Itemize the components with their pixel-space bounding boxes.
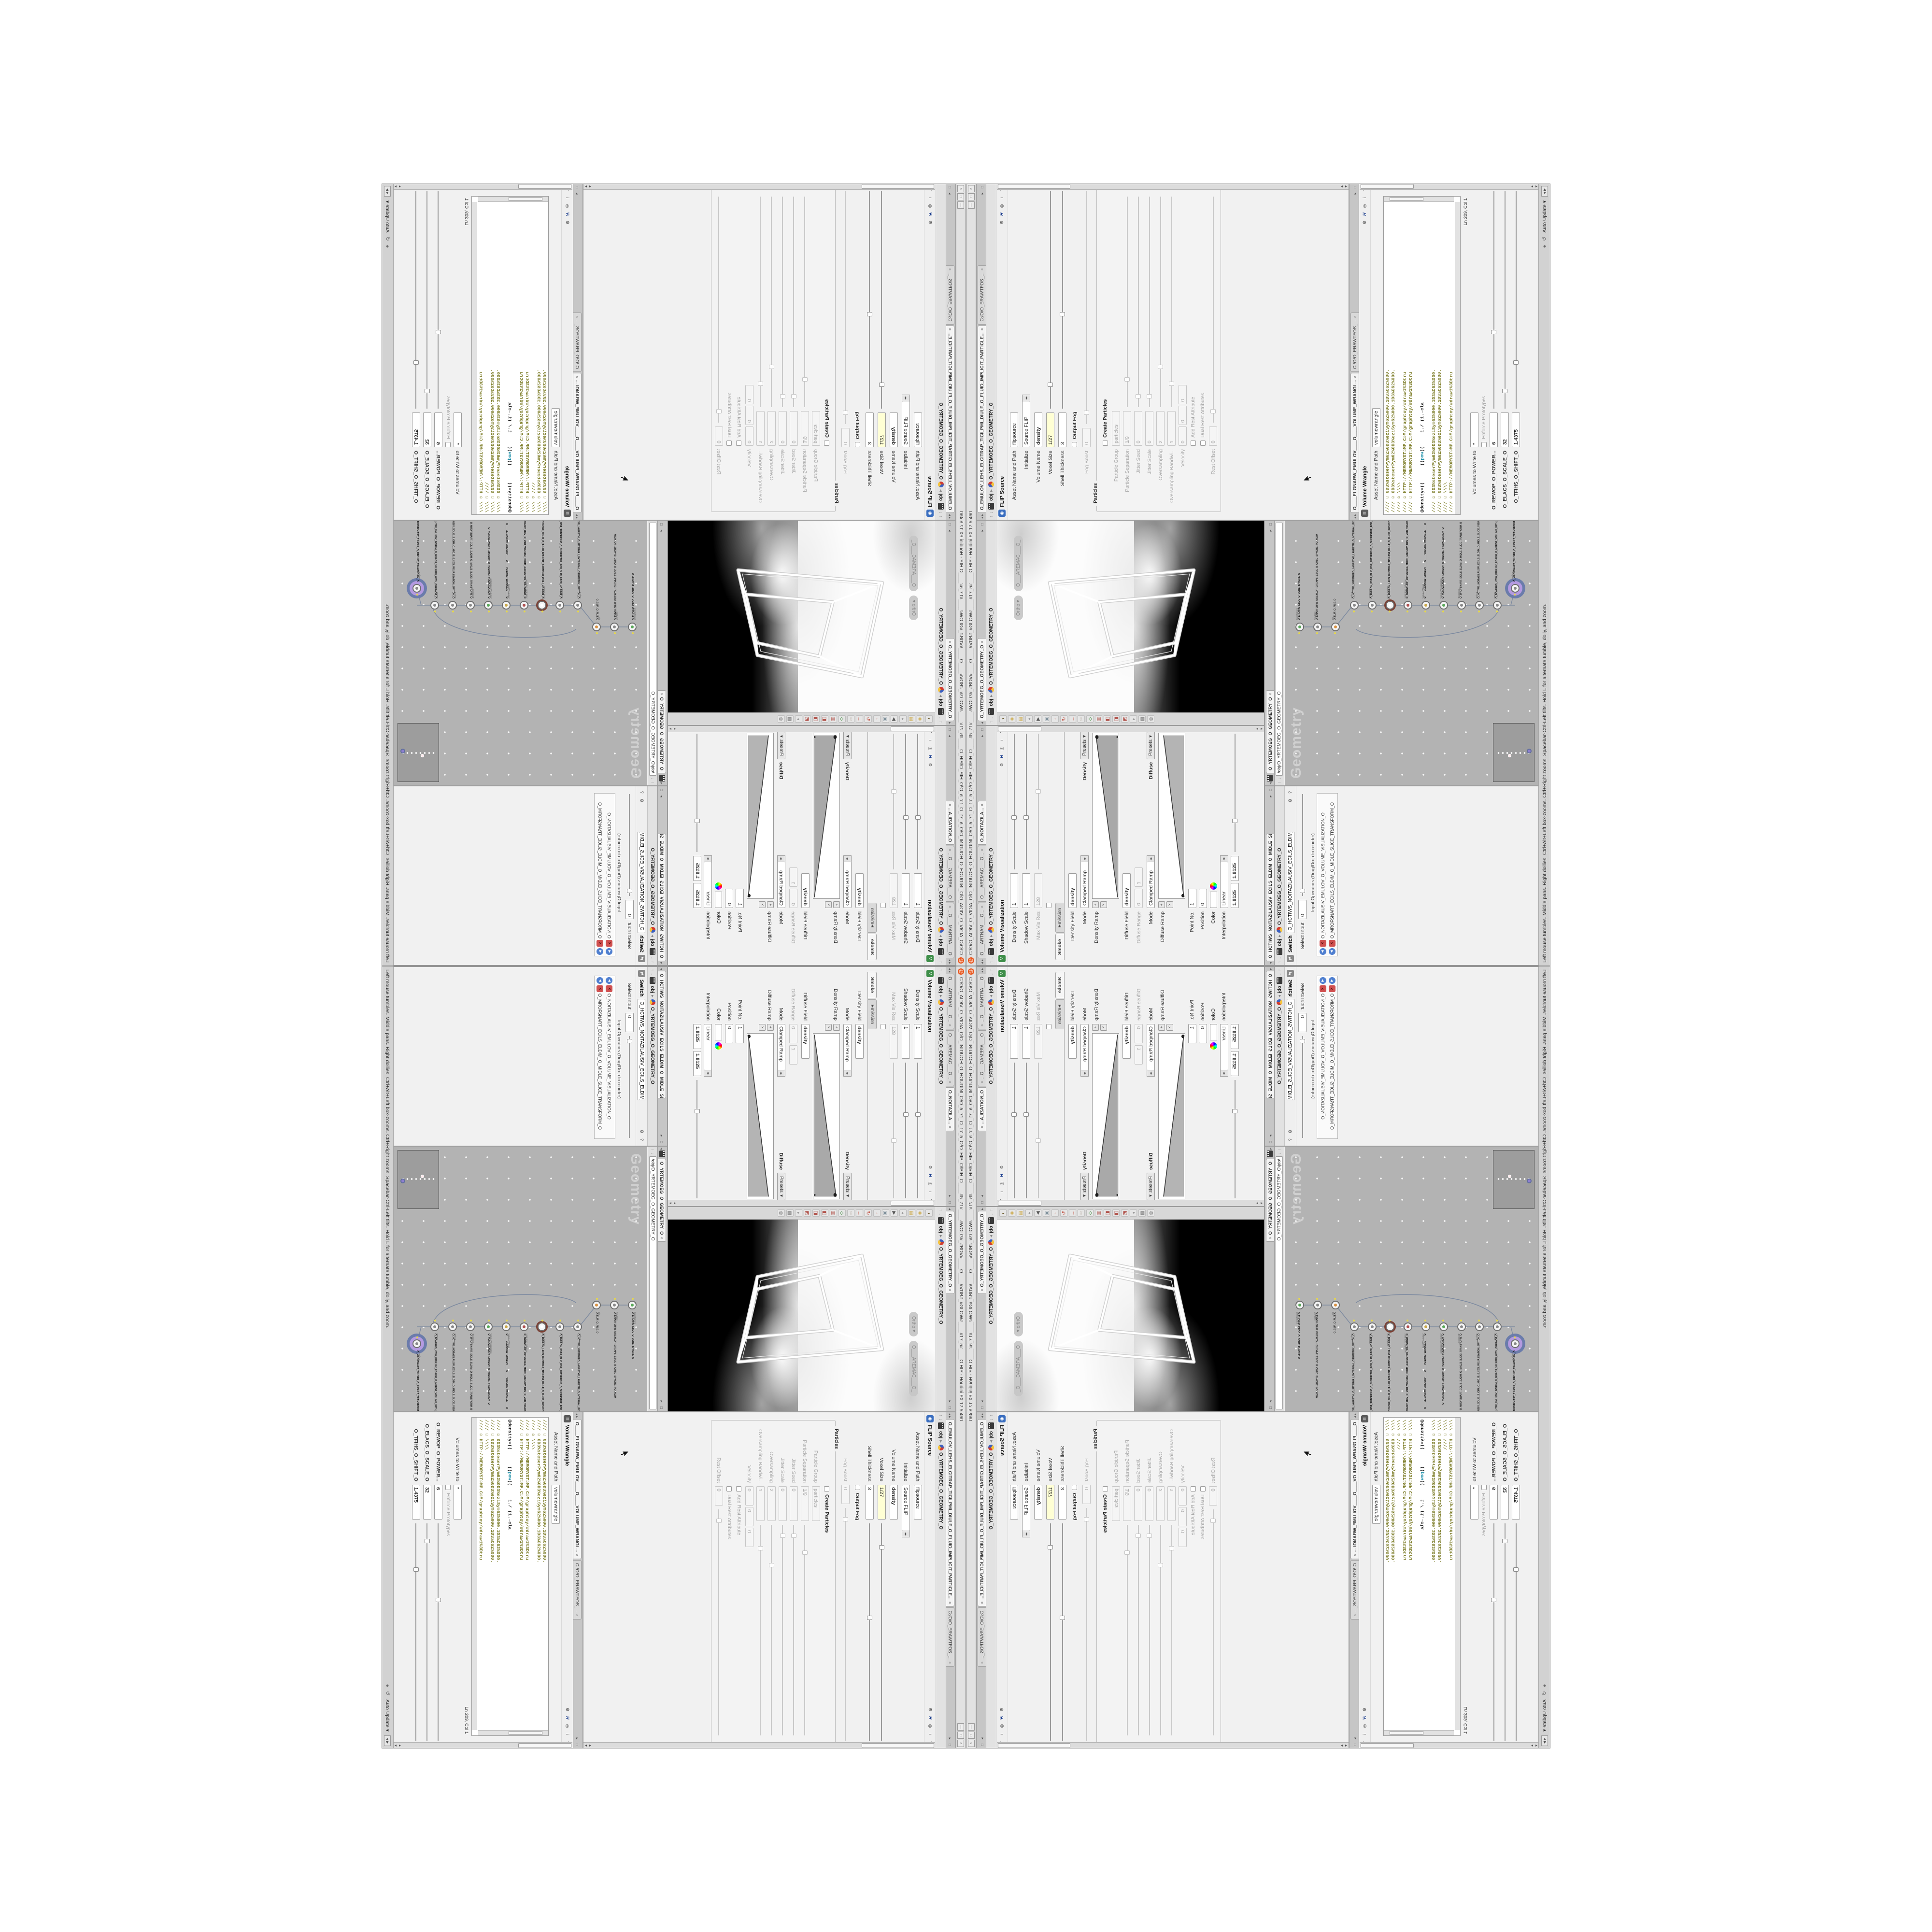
nav-up-icon[interactable]: ↑ [989, 1414, 994, 1417]
viewport-tool-icon[interactable]: ▨ [1138, 715, 1146, 723]
network-node[interactable]: Superstep O_EMULOV_EDAF_PILC_ROF_PETSREP… [555, 1322, 564, 1331]
folder-checkbox[interactable] [881, 1024, 886, 1029]
slider-thumb[interactable] [780, 1534, 785, 1538]
scroll-down-icon[interactable]: ▼ [668, 1200, 672, 1206]
viewport-tool-icon[interactable]: ▶ [891, 1209, 898, 1217]
pane-split-icon[interactable]: ▸ [948, 528, 952, 533]
tab-emission[interactable]: Emission [868, 903, 877, 933]
pane-split-icon[interactable]: ▸ [948, 733, 952, 739]
param-value-field[interactable]: 1 [736, 889, 744, 908]
input-operator-row[interactable]: ◀ × O_MROFSNART_ECILS_ELDIM_O_MIDLE_SLIC… [1327, 977, 1336, 1137]
ortho-pill-button[interactable]: Ortho ▾ [1014, 1312, 1023, 1336]
nav-up-icon[interactable]: ↑ [938, 516, 943, 518]
pane-maximize-icon[interactable]: □ [1268, 787, 1273, 793]
diffuse-field-value[interactable]: density [801, 873, 810, 908]
network-node[interactable]: FLIP Source O_EMULOV_LEHS_ELCITRAP_TICIL… [538, 601, 546, 610]
minimize-button[interactable]: — [958, 1723, 965, 1731]
param-slider[interactable] [715, 1509, 723, 1737]
pane-corner-gadget[interactable]: ◀▶ [384, 186, 391, 197]
vex-code-box[interactable]: //// ☺ 0D3%steserPym62%0D3%eziSym62%000.… [471, 1417, 549, 1736]
pane-split-icon[interactable]: ▸ [1268, 1399, 1273, 1404]
tab-scroll-right-icon[interactable]: ▸ [980, 1416, 984, 1418]
ramp-marker-icon[interactable]: ▶ [747, 1036, 751, 1038]
gear-icon[interactable]: ⚙ [927, 762, 933, 768]
zoom-icon[interactable]: ◎ [999, 1180, 1005, 1187]
viewport-tool-icon[interactable]: ◈ [917, 1209, 924, 1217]
density-field-value[interactable]: density [855, 873, 864, 908]
network-node[interactable]: Volume Visualization O_NOITAZILAUSIV_EMU… [484, 601, 493, 610]
asset-name-field[interactable]: volumewrangle [552, 408, 560, 447]
network-node[interactable]: Switch O_HCTIWS_YRTEMOEG_LANRETXE_LANRET… [573, 601, 582, 610]
pane-split-icon[interactable]: ▸ [575, 191, 579, 196]
param-slider[interactable] [842, 189, 849, 424]
viewport-tool-icon[interactable]: ↔ [1069, 715, 1076, 723]
color-swatch[interactable] [715, 1024, 723, 1040]
tab-scroll-right-icon[interactable]: ▸ [980, 514, 984, 516]
auto-update-dropdown[interactable]: Auto Update▾ [1542, 1699, 1548, 1732]
slider-thumb[interactable] [791, 394, 796, 398]
param-slider[interactable] [1023, 1063, 1030, 1200]
tab-scroll-right-icon[interactable]: ▸ [1353, 514, 1357, 516]
diffuse-field-value[interactable]: density [1122, 1024, 1131, 1059]
houdini-logo-icon[interactable]: H [999, 1172, 1005, 1179]
add-rest-checkbox[interactable] [737, 1486, 742, 1492]
output-fog-checkbox[interactable] [855, 1485, 860, 1490]
tab-close-icon[interactable]: × [980, 1662, 984, 1664]
param-value-field[interactable]: 1.8125 [694, 883, 702, 908]
dropdown-arrows-icon[interactable]: ◂▸ [1022, 1531, 1030, 1537]
param-slider[interactable] [779, 1525, 786, 1737]
network-path-field[interactable]: /obj/O_YRTEMOEG_O_GEOMETRY_O [1276, 523, 1283, 776]
pane-maximize-icon[interactable]: □ [980, 727, 984, 732]
pane-split-icon[interactable]: ▸ [1268, 1133, 1273, 1138]
param-value-field[interactable]: 1 [1188, 1024, 1196, 1043]
output-fog-checkbox[interactable] [855, 442, 860, 447]
houdini-logo-icon[interactable]: H [1362, 211, 1368, 217]
help-icon[interactable]: ? [1287, 1136, 1293, 1143]
slider-thumb[interactable] [769, 1563, 774, 1567]
nav-down-icon[interactable]: ↓ [989, 957, 994, 959]
param-slider[interactable] [1157, 195, 1164, 407]
slider-thumb[interactable] [891, 789, 896, 794]
param-value-field[interactable]: density [1034, 1485, 1042, 1520]
vertical-scrollbar[interactable]: ▲ ▼ [668, 726, 935, 732]
param-value-field[interactable]: 3 [866, 1485, 874, 1520]
zoom-icon[interactable]: ◎ [927, 1180, 933, 1187]
viewport-tool-icon[interactable]: ▶ [891, 715, 898, 723]
viewport-tool-icon[interactable]: ✂ [847, 715, 854, 723]
tab-emission[interactable]: Emission [868, 999, 877, 1030]
slider-thumb[interactable] [1502, 389, 1507, 393]
dropdown-arrows-icon[interactable]: ◂▸ [777, 1070, 785, 1077]
gear-icon[interactable]: ⚙ [999, 1706, 1005, 1713]
gear-icon[interactable]: ⚙ [564, 1706, 570, 1713]
param-slider[interactable] [1023, 732, 1030, 869]
ortho-pill-button[interactable]: Ortho ▾ [1014, 596, 1023, 620]
param-slider[interactable] [1135, 1525, 1142, 1737]
viewport-tool-icon[interactable]: ▤ [908, 1209, 915, 1217]
tab-close-icon[interactable]: × [980, 1289, 984, 1292]
diffuse-range-max-field[interactable]: 1 [1135, 867, 1143, 887]
volumes-to-write-field[interactable]: * [1470, 1485, 1478, 1520]
network-node[interactable]: Volume Visualization O_NOITAZILAUSIV_EMU… [1439, 1322, 1448, 1331]
nav-up-icon[interactable]: ↑ [1277, 1149, 1282, 1151]
slider-thumb[interactable] [1011, 1112, 1017, 1117]
scroll-down-icon[interactable]: ▼ [1260, 1200, 1264, 1206]
pane-corner-gadget[interactable]: ◀▶ [1541, 186, 1548, 197]
interpolation-dropdown[interactable]: Linear [704, 1024, 712, 1070]
vertical-scrollbar[interactable]: ▲ ▼ [1360, 184, 1539, 190]
scroll-up-icon[interactable]: ▲ [398, 1743, 401, 1748]
asset-name-field[interactable]: volumewrangle [1372, 408, 1380, 447]
pane-maximize-icon[interactable]: □ [1268, 1405, 1273, 1410]
param-value-field[interactable]: 1/9 [1123, 1486, 1131, 1521]
tab-smoke[interactable]: Smoke [1055, 972, 1064, 998]
scrollbar-thumb[interactable] [509, 1731, 542, 1735]
slider-thumb[interactable] [1124, 377, 1130, 382]
code-vertical-scrollbar[interactable] [1384, 1730, 1454, 1735]
scroll-down-icon[interactable]: ▼ [584, 184, 587, 189]
tab-scroll-left-icon[interactable]: ◂ [980, 722, 984, 724]
slider-thumb[interactable] [879, 1545, 884, 1549]
viewport-tool-icon[interactable]: ◍ [778, 1209, 785, 1217]
camera-pill-button[interactable]: O___AREMAC___O_ [909, 1341, 918, 1396]
tab-close-icon[interactable]: × [948, 1289, 952, 1292]
gear-icon[interactable]: ⚙ [1362, 219, 1368, 226]
network-node[interactable]: Transform O_MROFSNART_ECILS_ELDIM_O_MIDL… [1457, 601, 1466, 610]
network-node[interactable]: Transform O_MROFSNART_TLUSER_O_RESULT_TR… [412, 1339, 421, 1348]
param-value-field[interactable]: 1 [1022, 873, 1030, 908]
slider-thumb[interactable] [1300, 889, 1305, 893]
slider-thumb[interactable] [903, 1112, 909, 1117]
pane-tab[interactable]: O_YRTEMOEG_O_GEOMETRY_O× [978, 1211, 986, 1294]
nav-up-icon[interactable]: ↑ [989, 721, 994, 724]
param-value-field[interactable]: 0 [1145, 411, 1153, 446]
param-value-field[interactable]: density [890, 1485, 898, 1520]
pane-tab[interactable]: C:/O/O_ERAWTFOS_...× [978, 1607, 986, 1666]
density-mode-dropdown[interactable]: Clamped Ramp [843, 1024, 852, 1070]
tab-scroll-left-icon[interactable]: ◂ [659, 782, 664, 784]
param-slider[interactable] [1231, 1080, 1238, 1200]
diffuse-range-min-field[interactable]: 0 [789, 1024, 797, 1043]
vertical-scrollbar[interactable]: ▲ ▼ [1360, 1742, 1539, 1748]
network-node[interactable]: PolyWire O_EMARFERIW_NOGYLOP_EREHPS_EBUC… [1313, 623, 1322, 631]
vertical-scrollbar[interactable]: ▲ ▼ [583, 1742, 935, 1748]
network-minimap[interactable] [1493, 723, 1534, 782]
tab-close-icon[interactable]: × [980, 1081, 984, 1083]
nav-up-icon[interactable]: ↑ [651, 1149, 655, 1151]
ramp-add-point-icon[interactable]: + [1158, 901, 1165, 908]
param-value-field[interactable]: Source FLIP [1022, 401, 1030, 447]
tab-scroll-right-icon[interactable]: ▸ [980, 959, 984, 961]
param-slider[interactable] [1035, 732, 1042, 869]
operator-back-icon[interactable]: ◀ [606, 977, 613, 984]
houdini-logo-icon[interactable]: H [927, 211, 933, 217]
param-slider[interactable] [1059, 189, 1066, 409]
refresh-icon[interactable]: ↺ [1541, 1691, 1548, 1695]
pane-tab[interactable]: O_YRTEMOEG_O_GEOMETRY_O× [946, 1211, 954, 1294]
pane-tab[interactable]: O_NOITAZILA...× [946, 801, 954, 845]
viewport-3d-render[interactable]: Ortho ▾ O___AREMAC___O_ [997, 1220, 1264, 1411]
dropdown-arrows-icon[interactable]: ◂▸ [902, 1531, 910, 1537]
folder-checkbox[interactable] [1046, 1024, 1051, 1029]
tab-scroll-right-icon[interactable]: ▸ [575, 1416, 579, 1418]
slider-thumb[interactable] [436, 330, 441, 334]
scrollbar-thumb[interactable] [509, 197, 542, 201]
ramp-marker-icon[interactable]: ▲ [1115, 1193, 1119, 1197]
tab-close-icon[interactable]: × [948, 641, 952, 643]
ramp-marker-icon[interactable]: ▶ [1181, 894, 1185, 896]
network-node[interactable]: Switch O_HCTIWS_YRTEMOEG_LANRETXE_LANRET… [573, 1322, 582, 1331]
param-slider[interactable] [1146, 1525, 1153, 1737]
pane-maximize-icon[interactable]: □ [948, 1742, 952, 1747]
pane-tab[interactable]: C:/O/O_ERAWTFOS_...× [946, 1607, 954, 1666]
scrollbar-thumb[interactable] [891, 726, 934, 731]
nav-down-icon[interactable]: ↓ [1277, 957, 1282, 959]
param-value-field[interactable]: 1 [1010, 873, 1018, 908]
velocity-y-field[interactable]: 0 [745, 1507, 753, 1526]
param-value-field[interactable]: 1 [1167, 411, 1176, 446]
velocity-z-field[interactable]: 0 [1179, 1528, 1187, 1547]
auto-update-dropdown[interactable]: Auto Update▾ [385, 1699, 391, 1732]
tab-scroll-left-icon[interactable]: ◂ [1353, 1413, 1357, 1415]
dropdown-arrows-icon[interactable]: ◂▸ [777, 855, 785, 862]
scroll-down-icon[interactable]: ▼ [1345, 1743, 1348, 1748]
network-path-field[interactable]: /obj/O_YRTEMOEG_O_GEOMETRY_O [1276, 1156, 1283, 1409]
operator-back-icon[interactable]: ◀ [1329, 977, 1335, 984]
pane-tab[interactable]: O___AREMAC___O...× [946, 846, 954, 902]
diffuse-ramp-widget[interactable]: ▶ [1158, 733, 1185, 899]
scroll-up-icon[interactable]: ▲ [673, 726, 676, 732]
tab-scroll-left-icon[interactable]: ◂ [575, 517, 579, 519]
tab-close-icon[interactable]: × [1268, 693, 1273, 696]
viewport-tool-icon[interactable]: ▸ [1130, 1209, 1137, 1217]
pane-tab[interactable]: O_YRTEMOEG_O_GEOMETRY_O× [658, 690, 666, 773]
nav-down-icon[interactable]: ↓ [650, 957, 655, 959]
zoom-icon[interactable]: ◎ [999, 1723, 1005, 1729]
node-name-field[interactable]: O_HCTIWS_NOITAZILAUSIV_ECILS_ELDIM_O_ [1287, 832, 1294, 933]
slider-thumb[interactable] [1158, 365, 1163, 369]
tab-close-icon[interactable]: × [948, 1024, 952, 1026]
param-value-field[interactable]: 1.8125 [694, 1024, 702, 1049]
pane-maximize-icon[interactable]: □ [980, 1742, 984, 1747]
pane-split-icon[interactable]: ▸ [1268, 794, 1273, 799]
breadcrumb-obj[interactable]: obj [1277, 986, 1282, 993]
nav-down-icon[interactable]: ↓ [938, 511, 943, 514]
density-ramp-widget[interactable]: ▲ [1092, 733, 1119, 899]
viewport-tool-icon[interactable]: ↻ [865, 1209, 872, 1217]
enforce-prototypes-checkbox[interactable] [1481, 442, 1487, 447]
param-value-field[interactable]: 1.4375 [1512, 1485, 1520, 1520]
rest-offset-field[interactable]: 0 [1209, 426, 1217, 446]
vex-code-box[interactable]: //// ☺ 0D3%steserPym62%0D3%eziSym62%000.… [1383, 196, 1461, 515]
minimize-button[interactable]: — [968, 1723, 975, 1731]
param-slider[interactable] [768, 195, 775, 407]
globe-icon[interactable]: ● [385, 245, 391, 248]
nav-up-icon[interactable]: ↑ [650, 961, 655, 964]
enforce-prototypes-checkbox[interactable] [446, 1485, 451, 1490]
nav-down-icon[interactable]: ↓ [938, 1213, 943, 1216]
slider-thumb[interactable] [1136, 1534, 1141, 1538]
network-node[interactable]: VDB from Polygons O_SNOGYLOP_YRTEMOEG_MO… [1404, 1322, 1412, 1331]
nav-down-icon[interactable]: ↓ [1277, 778, 1282, 780]
viewport-tool-icon[interactable]: ◑ [925, 715, 933, 723]
nav-up-icon[interactable]: ↑ [938, 1414, 943, 1417]
pane-maximize-icon[interactable]: □ [948, 522, 952, 527]
pane-maximize-icon[interactable]: □ [659, 1139, 664, 1145]
input-operator-row[interactable]: ◀ × O_MROFSNART_ECILS_ELDIM_O_MIDLE_SLIC… [596, 795, 605, 955]
create-particles-checkbox[interactable] [1103, 1486, 1108, 1492]
slider-thumb[interactable] [780, 394, 785, 398]
slider-thumb[interactable] [1147, 394, 1152, 398]
slider-thumb[interactable] [1048, 383, 1053, 387]
pane-maximize-icon[interactable]: □ [659, 787, 664, 793]
network-node[interactable]: CubeSphere O_EREHPS_EBUC_O_CUBE_SPHERE_O [628, 1301, 637, 1309]
vertical-scrollbar[interactable]: ▲ ▼ [997, 1742, 1349, 1748]
diffuse-mode-dropdown[interactable]: Clamped Ramp [1147, 862, 1155, 908]
tab-close-icon[interactable]: × [980, 849, 984, 851]
camera-pill-button[interactable]: O___AREMAC___O_ [1014, 1341, 1023, 1396]
density-ramp-widget[interactable]: ▲ [1092, 1033, 1119, 1199]
viewport-tool-icon[interactable]: ↻ [865, 715, 872, 723]
rest-offset-field[interactable]: 0 [715, 426, 723, 446]
param-value-field[interactable]: 128 [890, 1024, 898, 1059]
scroll-down-icon[interactable]: ▼ [584, 1743, 587, 1748]
pane-split-icon[interactable]: ▸ [980, 1736, 984, 1741]
output-fog-checkbox[interactable] [1072, 1485, 1077, 1490]
pane-maximize-icon[interactable]: □ [980, 522, 984, 527]
network-node[interactable]: PolyWire O_EMARFERIW_NOGYLOP_EREHPS_EBUC… [1313, 1301, 1322, 1309]
fog-boost-field[interactable]: 0 [841, 428, 850, 447]
nav-up-icon[interactable]: ↑ [989, 969, 994, 971]
slider-thumb[interactable] [879, 383, 884, 387]
pane-maximize-icon[interactable]: □ [948, 185, 952, 190]
tab-scroll-right-icon[interactable]: ▸ [948, 971, 952, 973]
pane-maximize-icon[interactable]: □ [980, 1405, 984, 1410]
pane-tab[interactable]: O____ELGNARW_EMULOV____O____VOLUME_WRANG… [573, 1419, 582, 1559]
tab-close-icon[interactable]: × [660, 693, 664, 696]
pane-tab[interactable]: O_YRTEMOEG_O_GEOMETRY_O× [946, 638, 954, 721]
param-slider[interactable] [1083, 189, 1090, 424]
viewport-tool-icon[interactable]: ◂ [899, 1209, 907, 1217]
param-value-field[interactable]: 1/9 [801, 1486, 809, 1521]
code-vertical-scrollbar[interactable] [478, 197, 548, 202]
breadcrumb-obj[interactable]: obj [938, 986, 944, 993]
breadcrumb-obj[interactable]: obj [989, 699, 994, 706]
houdini-logo-icon[interactable]: H [927, 753, 933, 760]
vex-snippet-editor[interactable]: //// ☺ 0D3%steserPym62%0D3%eziSym62%000.… [471, 1417, 549, 1736]
houdini-logo-icon[interactable]: H [999, 753, 1005, 760]
pane-split-icon[interactable]: ▸ [659, 528, 664, 533]
info-icon[interactable]: i [999, 1189, 1005, 1195]
pane-tab[interactable]: C:/O/O_ERAWTFOS_...× [946, 265, 954, 324]
network-canvas[interactable]: Geometry [1285, 521, 1539, 785]
param-value-field[interactable]: Source FLIP [902, 401, 910, 447]
breadcrumb-geometry[interactable]: O_YRTEMOEG_O_GEOMETRY_O [1277, 848, 1282, 925]
network-node[interactable]: Switch O_HCTIWS_NOITAZILAUSIV_ECILS_ELDI… [448, 1322, 457, 1331]
scroll-down-icon[interactable]: ▼ [394, 1743, 397, 1748]
scroll-down-icon[interactable]: ▼ [668, 726, 672, 732]
info-icon[interactable]: i [999, 1731, 1005, 1737]
tab-smoke[interactable]: Smoke [868, 934, 877, 960]
scroll-down-icon[interactable]: ▼ [1535, 1743, 1538, 1748]
pane-tab[interactable]: C:/O/O_ERAWTFOS_...× [573, 313, 582, 372]
scroll-up-icon[interactable]: ▲ [1256, 1200, 1259, 1206]
network-node[interactable]: Volume Visualization O_NOITAZILAUSIV_EMU… [1439, 601, 1448, 610]
param-value-field[interactable]: particles [812, 411, 820, 446]
houdini-logo-icon[interactable]: H [564, 211, 570, 217]
tab-close-icon[interactable]: × [980, 906, 984, 908]
ramp-add-point-icon[interactable]: + [1092, 901, 1099, 908]
slider-thumb[interactable] [1136, 394, 1141, 398]
refresh-icon[interactable]: ↺ [384, 1691, 391, 1695]
slider-thumb[interactable] [1232, 819, 1237, 823]
input-operator-row[interactable]: ◀ × O_NOITAZILAUSIV_EMULOV_O_VOLUME_VISU… [605, 795, 614, 955]
param-slider[interactable] [1299, 792, 1306, 896]
tab-close-icon[interactable]: × [980, 268, 984, 270]
velocity-y-field[interactable]: 0 [745, 406, 753, 425]
pane-tab[interactable]: O_NOITAZILA...× [978, 801, 986, 845]
tab-scroll-left-icon[interactable]: ◂ [1268, 1148, 1273, 1150]
network-node[interactable]: Superstep O_EMULOV_EDAF_PILC_ROF_PETSREP… [555, 601, 564, 610]
param-slider[interactable] [790, 195, 797, 407]
ramp-delete-point-icon[interactable]: × [1166, 1024, 1173, 1031]
slider-thumb[interactable] [627, 1039, 632, 1043]
tab-scroll-left-icon[interactable]: ◂ [980, 517, 984, 519]
breadcrumb-geometry[interactable]: O_YRTEMOEG_O_GEOMETRY_O [938, 1247, 944, 1324]
network-node[interactable]: Volume Visualization O_NOITAZILAUSIV_EMU… [484, 1322, 493, 1331]
ramp-delete-point-icon[interactable]: × [1100, 1024, 1107, 1031]
zoom-icon[interactable]: ◎ [927, 745, 933, 752]
slider-thumb[interactable] [758, 382, 763, 386]
nav-down-icon[interactable]: ↓ [989, 1419, 994, 1421]
ramp-add-point-icon[interactable]: + [767, 1024, 774, 1031]
param-slider[interactable] [412, 189, 420, 409]
scroll-up-icon[interactable]: ▲ [588, 1743, 592, 1748]
network-node[interactable]: Merge O_ECAFRUS_HTIW_EMULOV_EGREM_O_MERG… [1493, 601, 1502, 610]
dropdown-arrows-icon[interactable]: ◂▸ [1022, 395, 1030, 401]
slider-thumb[interactable] [802, 377, 808, 382]
network-node[interactable]: CubeSphere O_EREHPS_EBUC_O_CUBE_SPHERE_O [628, 623, 637, 631]
slider-thumb[interactable] [413, 1567, 419, 1572]
pane-maximize-icon[interactable]: □ [1353, 1742, 1357, 1747]
slider-thumb[interactable] [716, 1519, 722, 1523]
color-wheel-icon[interactable] [1210, 1042, 1217, 1050]
slider-thumb[interactable] [1169, 1546, 1174, 1550]
diffuse-ramp-widget[interactable]: ▶ [747, 733, 774, 899]
slider-thumb[interactable] [843, 1517, 848, 1521]
velocity-y-field[interactable]: 0 [1179, 406, 1187, 425]
pane-maximize-icon[interactable]: □ [659, 522, 664, 527]
network-canvas[interactable]: Geometry [393, 521, 647, 785]
viewport-tool-icon[interactable]: ◩ [1121, 715, 1128, 723]
slider-thumb[interactable] [1060, 312, 1065, 316]
pane-tab[interactable]: O____ELGNARW_EMULOV____O____VOLUME_WRANG… [1350, 1419, 1359, 1559]
density-presets-button[interactable]: Presets▾ [843, 1173, 852, 1200]
param-slider[interactable] [694, 1080, 701, 1200]
pane-split-icon[interactable]: ▸ [980, 528, 984, 533]
network-node[interactable]: Transform O_MROFSNART_ECILS_ELDIM_O_MIDL… [1457, 1322, 1466, 1331]
operator-back-icon[interactable]: ◀ [606, 948, 613, 955]
slider-thumb[interactable] [695, 819, 700, 823]
param-value-field[interactable]: 0 [1134, 1486, 1142, 1521]
velocity-x-field[interactable]: 0 [745, 426, 753, 446]
param-slider[interactable] [1501, 1523, 1508, 1743]
ortho-pill-button[interactable]: Ortho ▾ [909, 596, 918, 620]
pane-tab[interactable]: O_YRTEMOEG_O_GEOMETRY_O× [978, 638, 986, 721]
operator-delete-icon[interactable]: × [597, 940, 604, 947]
param-value-field[interactable]: 1/27 [1046, 412, 1054, 447]
